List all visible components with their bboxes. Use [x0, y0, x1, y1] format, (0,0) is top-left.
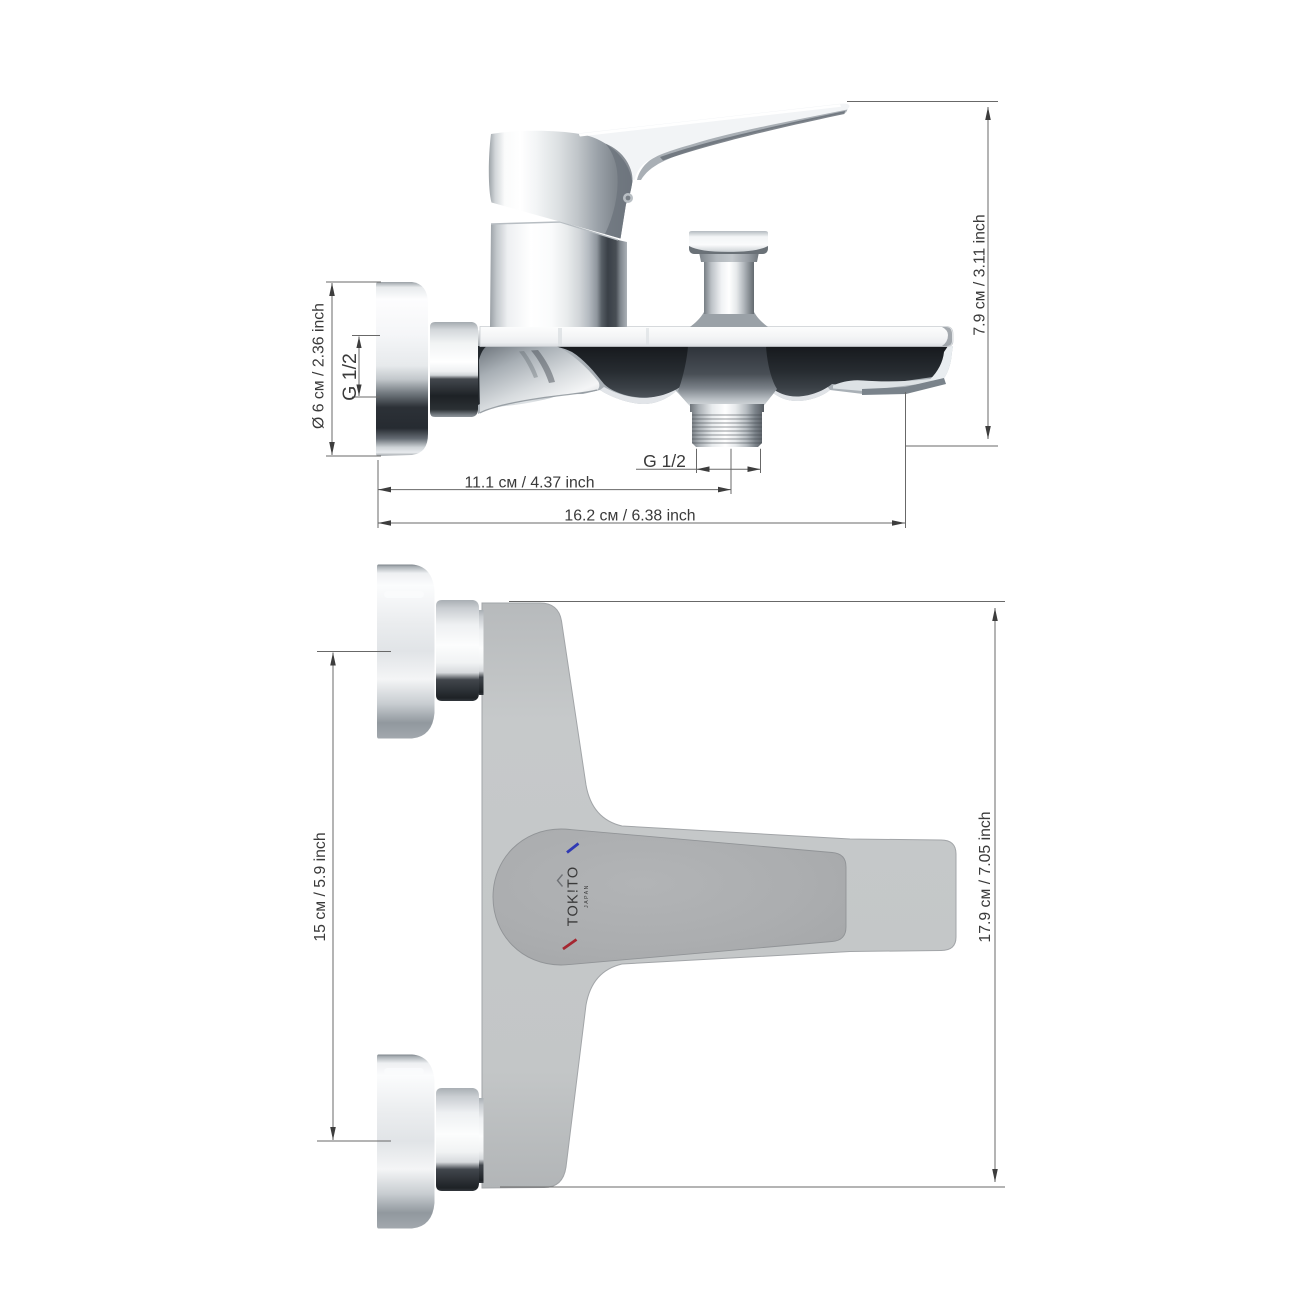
- svg-text:7.9 см / 3.11 inch: 7.9 см / 3.11 inch: [972, 214, 989, 335]
- svg-text:JAPAN: JAPAN: [584, 884, 590, 908]
- svg-text:G 1/2: G 1/2: [339, 353, 361, 401]
- svg-text:G 1/2: G 1/2: [643, 451, 686, 471]
- svg-text:17.9 см / 7.05 inch: 17.9 см / 7.05 inch: [977, 811, 994, 942]
- svg-text:Ø 6 см / 2.36 inch: Ø 6 см / 2.36 inch: [311, 303, 328, 429]
- svg-text:15 см / 5.9 inch: 15 см / 5.9 inch: [312, 832, 329, 941]
- svg-text:11.1 см / 4.37 inch: 11.1 см / 4.37 inch: [464, 475, 594, 492]
- svg-text:16.2 см / 6.38 inch: 16.2 см / 6.38 inch: [564, 507, 695, 524]
- svg-text:TOK!TO: TOK!TO: [566, 866, 582, 927]
